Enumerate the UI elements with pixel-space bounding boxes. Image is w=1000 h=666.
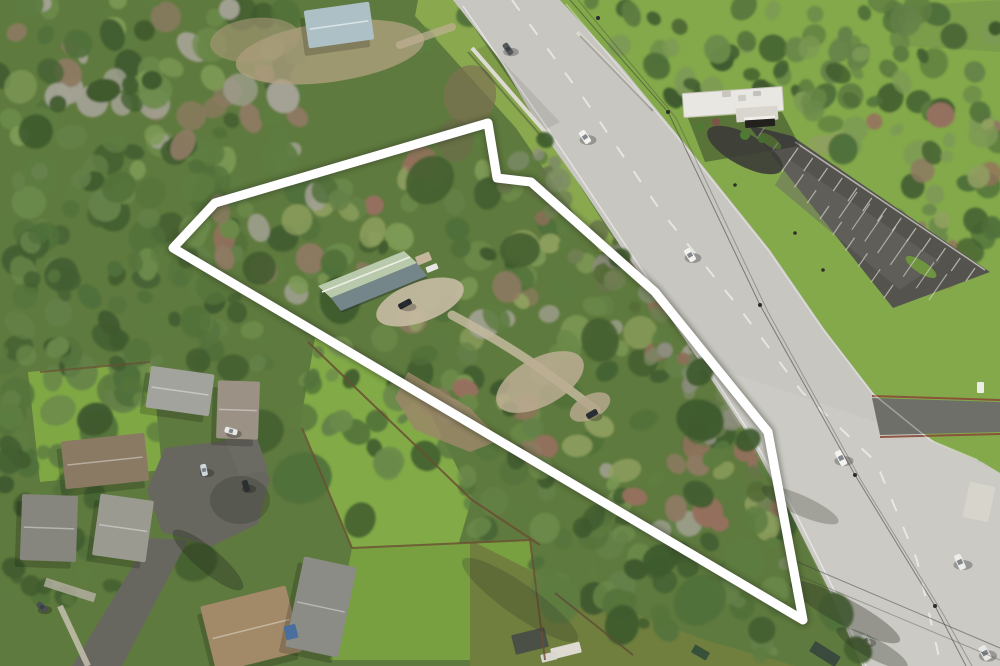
lot-light-pole — [821, 268, 825, 272]
house-gray-southwest — [15, 494, 79, 569]
aerial-scene — [0, 0, 1000, 666]
house-brown-west — [56, 433, 149, 497]
tree-blob — [663, 39, 680, 58]
house-gray-north — [139, 366, 214, 423]
tree-blob — [828, 133, 857, 164]
ornamental-tree-red — [712, 118, 720, 126]
east-driveway — [872, 398, 1000, 435]
roadside-sign — [977, 382, 984, 393]
utility-pole — [666, 110, 670, 114]
rooftop-unit — [738, 95, 746, 102]
utility-pole — [596, 16, 600, 20]
utility-pole — [853, 473, 857, 477]
rooftop-unit — [722, 91, 731, 98]
lot-light-pole — [793, 231, 797, 235]
utility-pole — [758, 303, 762, 307]
ornamental-tree — [696, 123, 704, 131]
house-gray-south — [86, 494, 154, 569]
rooftop-unit — [753, 91, 761, 97]
aerial-photo-figure — [0, 0, 1000, 666]
office-canopy — [744, 117, 775, 119]
utility-pole — [933, 604, 937, 608]
lot-light-pole — [733, 183, 737, 187]
ornamental-tree — [740, 130, 750, 140]
tree-shadow-cul-de-sac — [210, 476, 270, 524]
ornamental-tree — [758, 135, 766, 143]
scene-root — [0, 0, 1000, 666]
